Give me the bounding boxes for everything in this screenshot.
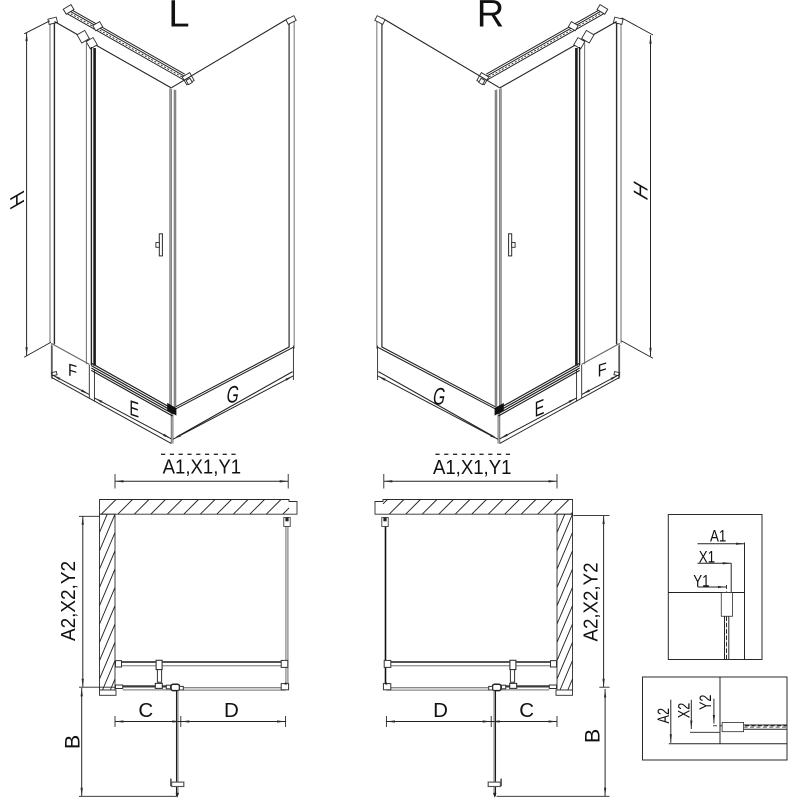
svg-text:F: F [598, 358, 607, 381]
svg-text:A2,X2,Y2: A2,X2,Y2 [580, 563, 602, 642]
svg-text:G: G [226, 382, 240, 408]
svg-text:B: B [581, 729, 605, 743]
svg-text:Y2: Y2 [696, 695, 715, 711]
svg-text:B: B [60, 735, 84, 749]
svg-text:Y1: Y1 [693, 571, 709, 590]
svg-text:A2: A2 [654, 708, 673, 724]
svg-text:E: E [129, 395, 139, 422]
svg-text:A1: A1 [710, 526, 726, 545]
svg-text:C: C [138, 699, 153, 722]
svg-text:G: G [432, 384, 446, 410]
svg-text:X2: X2 [675, 703, 694, 719]
svg-text:L: L [168, 0, 189, 36]
svg-text:A1,X1,Y1: A1,X1,Y1 [163, 456, 242, 478]
svg-text:R: R [477, 0, 504, 36]
svg-text:E: E [535, 394, 545, 422]
svg-text:A2,X2,Y2: A2,X2,Y2 [58, 561, 80, 641]
svg-text:D: D [224, 699, 239, 722]
svg-text:C: C [519, 699, 534, 722]
svg-text:X1: X1 [699, 548, 715, 567]
svg-text:D: D [433, 699, 448, 722]
svg-text:F: F [68, 359, 77, 382]
svg-text:A1,X1,Y1: A1,X1,Y1 [433, 457, 512, 479]
